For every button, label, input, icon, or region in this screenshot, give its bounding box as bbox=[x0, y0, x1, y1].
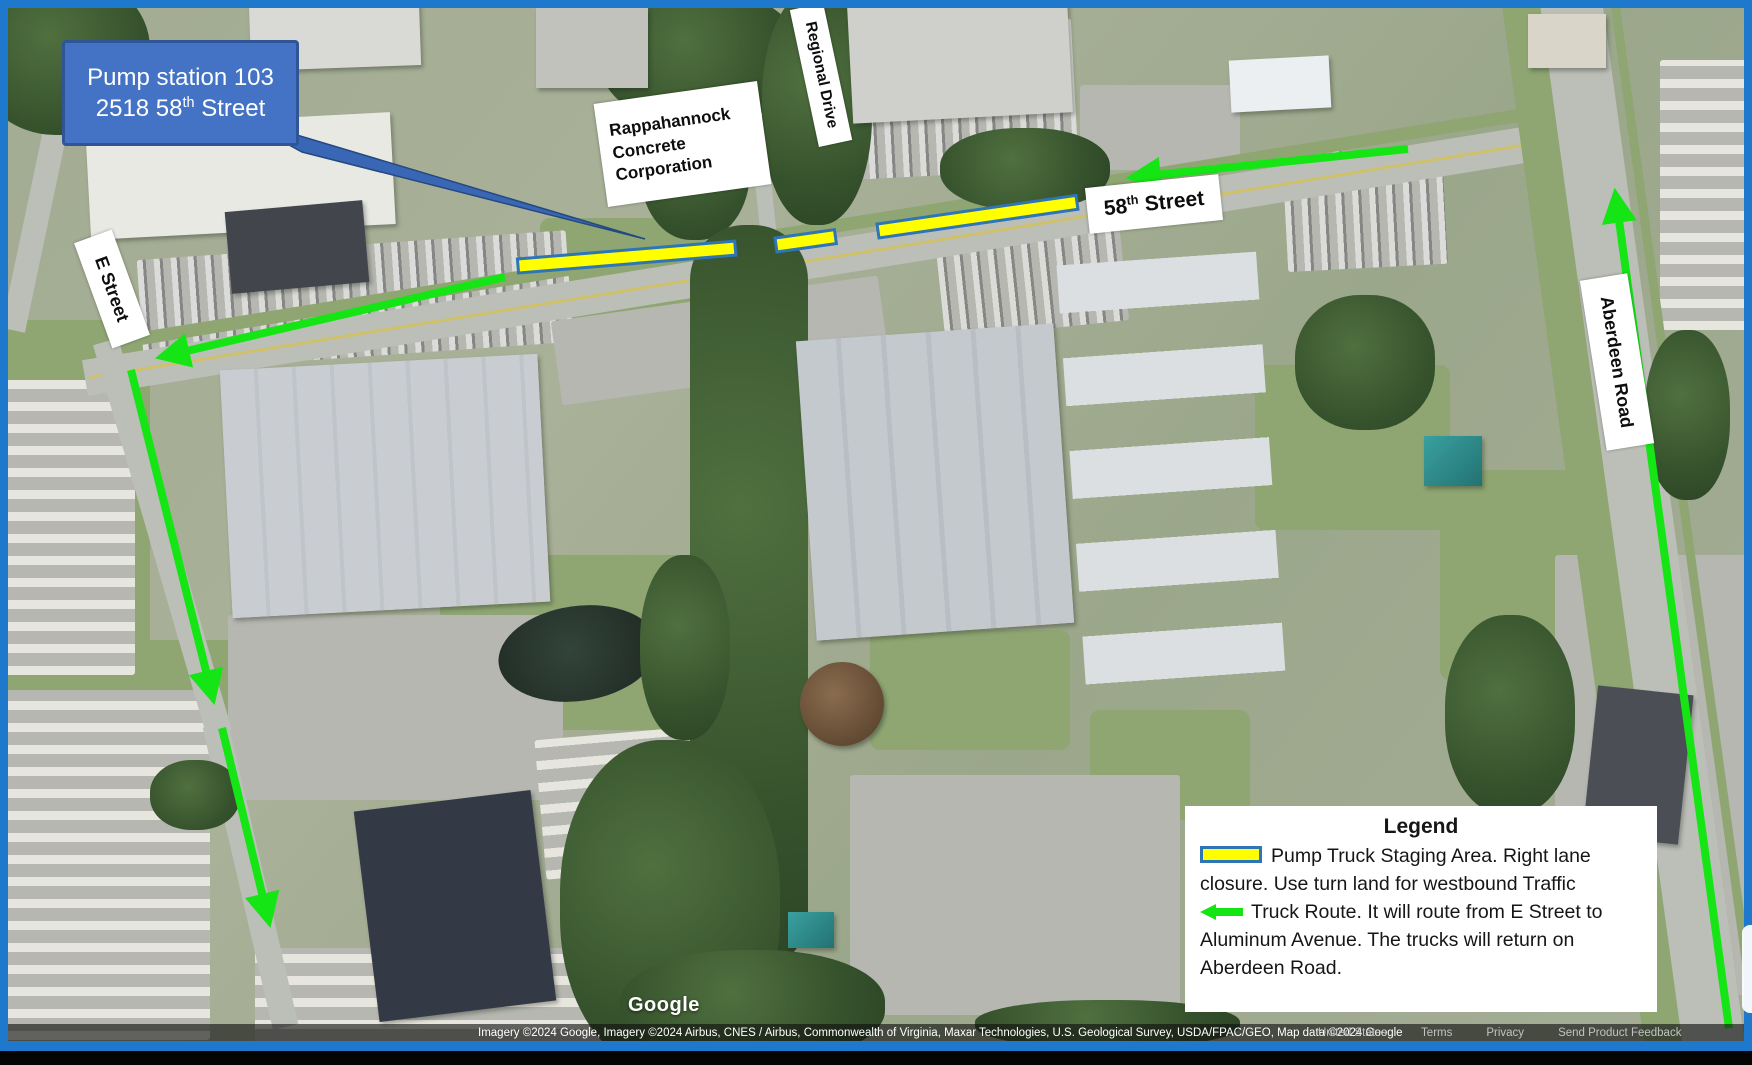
staging-area-segment bbox=[775, 230, 836, 252]
staging-swatch-icon bbox=[1200, 846, 1262, 863]
callout-pointer bbox=[240, 118, 645, 239]
truck-route-arrow-icon bbox=[1200, 904, 1244, 920]
link-terms[interactable]: Terms bbox=[1421, 1027, 1452, 1039]
truck-route-e-street-upper bbox=[131, 370, 212, 695]
pump-station-callout: Pump station 103 2518 58th Street bbox=[62, 40, 299, 146]
frame-top bbox=[0, 0, 1752, 8]
truck-route-58th-east bbox=[1136, 149, 1408, 177]
link-privacy[interactable]: Privacy bbox=[1486, 1027, 1524, 1039]
staging-area-segment bbox=[517, 241, 735, 273]
legend-route-row: Truck Route. It will route from E Street… bbox=[1200, 898, 1642, 982]
bottom-letterbox bbox=[0, 1051, 1752, 1065]
frame-right bbox=[1744, 0, 1752, 1051]
imagery-attribution: Imagery ©2024 Google, Imagery ©2024 Airb… bbox=[478, 1027, 1403, 1039]
link-feedback[interactable]: Send Product Feedback bbox=[1558, 1027, 1681, 1039]
truck-route-e-street-lower bbox=[222, 728, 268, 918]
callout-line2: 2518 58th Street bbox=[96, 93, 265, 124]
callout-line1: Pump station 103 bbox=[87, 62, 274, 93]
attribution-bar: Imagery ©2024 Google, Imagery ©2024 Airb… bbox=[0, 1024, 1752, 1041]
legend-staging-row: Pump Truck Staging Area. Right lane clos… bbox=[1200, 842, 1642, 898]
legend-title: Legend bbox=[1200, 813, 1642, 841]
frame-bottom bbox=[0, 1041, 1752, 1051]
legend-box: Legend Pump Truck Staging Area. Right la… bbox=[1185, 806, 1657, 1012]
footer-links: United States Terms Privacy Send Product… bbox=[1318, 1027, 1681, 1039]
staging-area-segment bbox=[877, 195, 1078, 238]
frame-left bbox=[0, 0, 8, 1051]
google-watermark[interactable]: Google bbox=[628, 994, 700, 1017]
truck-route-58th-west bbox=[165, 277, 505, 356]
link-country[interactable]: United States bbox=[1318, 1027, 1387, 1039]
map-control-fragment[interactable] bbox=[1742, 925, 1752, 1013]
slide-canvas: Pump station 103 2518 58th Street Rappah… bbox=[0, 0, 1752, 1065]
